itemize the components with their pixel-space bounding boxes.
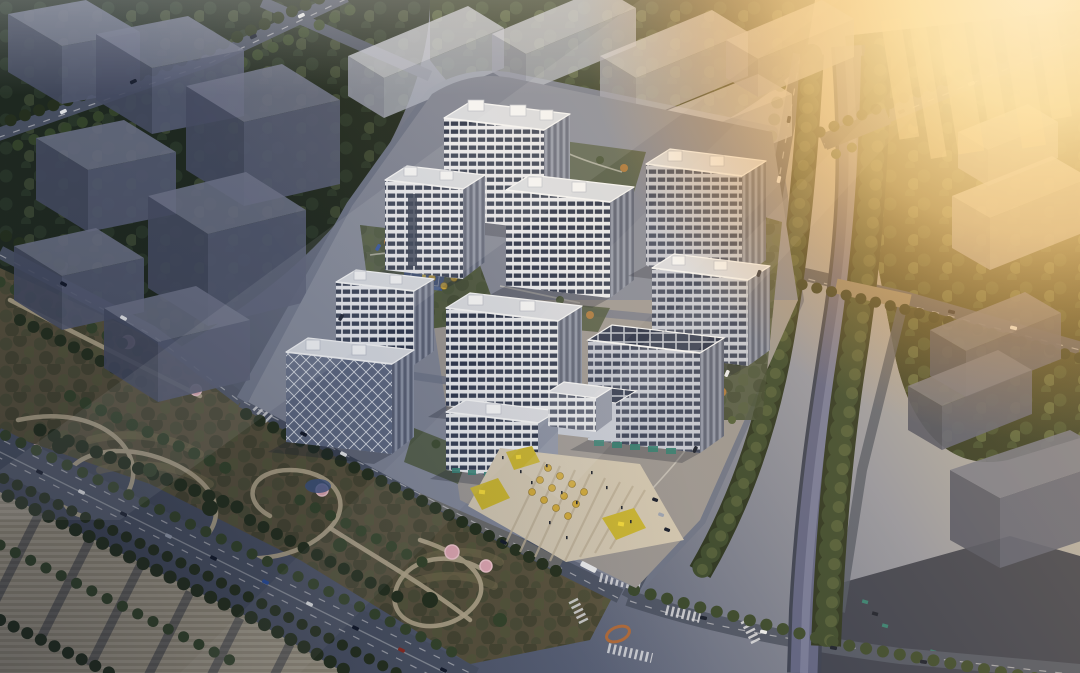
vignette [0,0,1080,673]
aerial-render: Architectural aerial rendering [0,0,1080,673]
atmosphere [0,0,1080,673]
aerial-render-canvas: Architectural aerial rendering [0,0,1080,673]
